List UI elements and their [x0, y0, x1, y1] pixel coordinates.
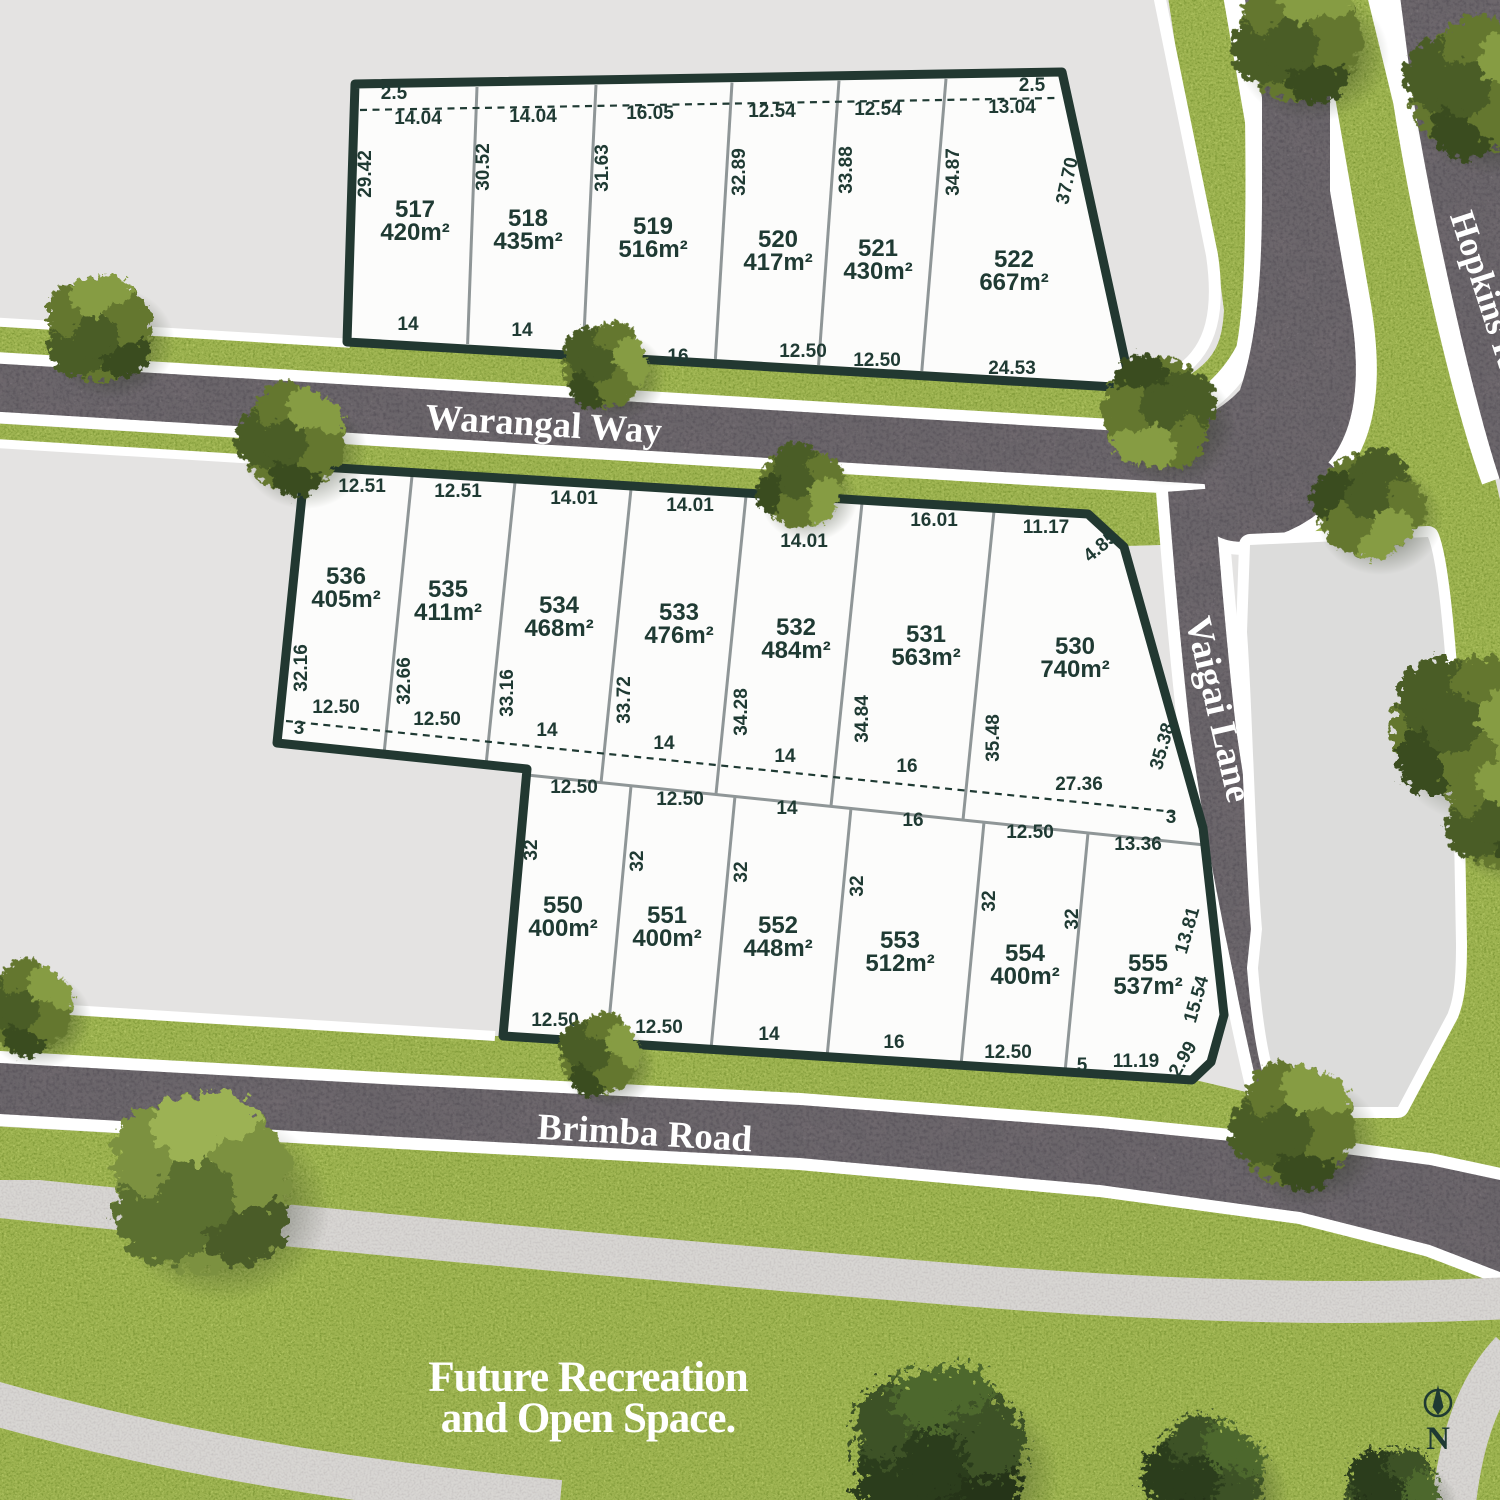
svg-text:12.50: 12.50	[656, 789, 704, 810]
svg-text:14: 14	[511, 320, 533, 341]
svg-text:484m²: 484m²	[761, 637, 830, 664]
svg-text:12.50: 12.50	[779, 341, 827, 362]
svg-text:537m²: 537m²	[1113, 973, 1182, 1000]
svg-text:11.17: 11.17	[1023, 517, 1070, 538]
svg-text:33.72: 33.72	[614, 676, 635, 724]
svg-text:12.50: 12.50	[550, 777, 598, 798]
svg-text:14: 14	[653, 733, 675, 754]
svg-text:14.01: 14.01	[666, 495, 714, 516]
svg-text:512m²: 512m²	[865, 950, 934, 977]
svg-text:12.54: 12.54	[748, 101, 796, 122]
svg-text:34.87: 34.87	[943, 148, 964, 196]
svg-text:516m²: 516m²	[618, 236, 687, 263]
svg-text:12.51: 12.51	[434, 481, 482, 502]
svg-text:12.50: 12.50	[413, 709, 461, 730]
svg-text:468m²: 468m²	[524, 615, 593, 642]
svg-text:32.66: 32.66	[394, 657, 415, 705]
svg-text:3: 3	[294, 718, 305, 739]
svg-text:34.84: 34.84	[852, 695, 873, 743]
svg-text:35.48: 35.48	[983, 714, 1004, 762]
svg-text:14: 14	[758, 1024, 780, 1045]
svg-text:16: 16	[883, 1032, 904, 1053]
svg-text:16.01: 16.01	[910, 510, 958, 531]
svg-text:417m²: 417m²	[743, 249, 812, 276]
svg-text:16: 16	[667, 346, 688, 367]
svg-text:5: 5	[1077, 1055, 1088, 1076]
svg-text:667m²: 667m²	[979, 269, 1048, 296]
svg-text:29.42: 29.42	[355, 150, 376, 198]
svg-text:12.50: 12.50	[635, 1017, 683, 1038]
svg-text:14: 14	[774, 746, 796, 767]
svg-text:411m²: 411m²	[414, 599, 482, 626]
svg-text:14.01: 14.01	[550, 488, 598, 509]
svg-text:405m²: 405m²	[311, 586, 380, 613]
svg-text:32: 32	[521, 839, 542, 860]
svg-text:476m²: 476m²	[644, 622, 713, 649]
svg-text:16: 16	[902, 810, 923, 831]
svg-text:14: 14	[397, 314, 419, 335]
svg-text:N: N	[1426, 1421, 1450, 1457]
svg-text:34.28: 34.28	[731, 688, 752, 736]
svg-text:14.04: 14.04	[509, 106, 557, 127]
svg-text:16.05: 16.05	[626, 103, 674, 124]
svg-text:740m²: 740m²	[1040, 656, 1109, 683]
svg-text:24.53: 24.53	[988, 358, 1036, 379]
svg-text:33.88: 33.88	[836, 146, 857, 194]
svg-text:32.89: 32.89	[729, 148, 750, 196]
svg-text:31.63: 31.63	[592, 144, 613, 192]
svg-text:400m²: 400m²	[632, 925, 701, 952]
svg-text:13.04: 13.04	[988, 97, 1036, 118]
svg-text:12.50: 12.50	[984, 1042, 1032, 1063]
svg-text:12.50: 12.50	[312, 697, 360, 718]
svg-text:and Open Space.: and Open Space.	[441, 1395, 735, 1442]
svg-text:32: 32	[1062, 908, 1083, 929]
svg-text:2.5: 2.5	[381, 83, 408, 104]
svg-text:12.50: 12.50	[1006, 822, 1054, 843]
svg-text:32: 32	[731, 861, 752, 882]
svg-text:400m²: 400m²	[990, 963, 1059, 990]
svg-text:32: 32	[847, 875, 868, 896]
svg-text:30.52: 30.52	[473, 143, 494, 191]
svg-text:3: 3	[1166, 807, 1177, 828]
svg-text:2.5: 2.5	[1019, 75, 1046, 96]
svg-text:16: 16	[896, 756, 917, 777]
svg-text:27.36: 27.36	[1055, 774, 1103, 795]
svg-text:563m²: 563m²	[891, 644, 960, 671]
svg-text:448m²: 448m²	[743, 935, 812, 962]
svg-text:400m²: 400m²	[528, 915, 597, 942]
svg-text:32: 32	[979, 890, 1000, 911]
svg-text:13.36: 13.36	[1114, 834, 1162, 855]
svg-text:14.04: 14.04	[394, 108, 442, 129]
svg-text:14: 14	[776, 798, 798, 819]
svg-text:12.50: 12.50	[853, 350, 901, 371]
svg-text:32.16: 32.16	[291, 644, 312, 692]
svg-text:14: 14	[536, 720, 558, 741]
svg-text:435m²: 435m²	[493, 228, 562, 255]
svg-text:11.19: 11.19	[1113, 1051, 1160, 1072]
svg-text:420m²: 420m²	[380, 219, 449, 246]
svg-text:12.54: 12.54	[854, 99, 902, 120]
svg-text:32: 32	[627, 850, 648, 871]
svg-text:33.16: 33.16	[497, 669, 518, 717]
svg-text:Future Recreation: Future Recreation	[428, 1354, 748, 1401]
svg-text:430m²: 430m²	[843, 258, 912, 285]
